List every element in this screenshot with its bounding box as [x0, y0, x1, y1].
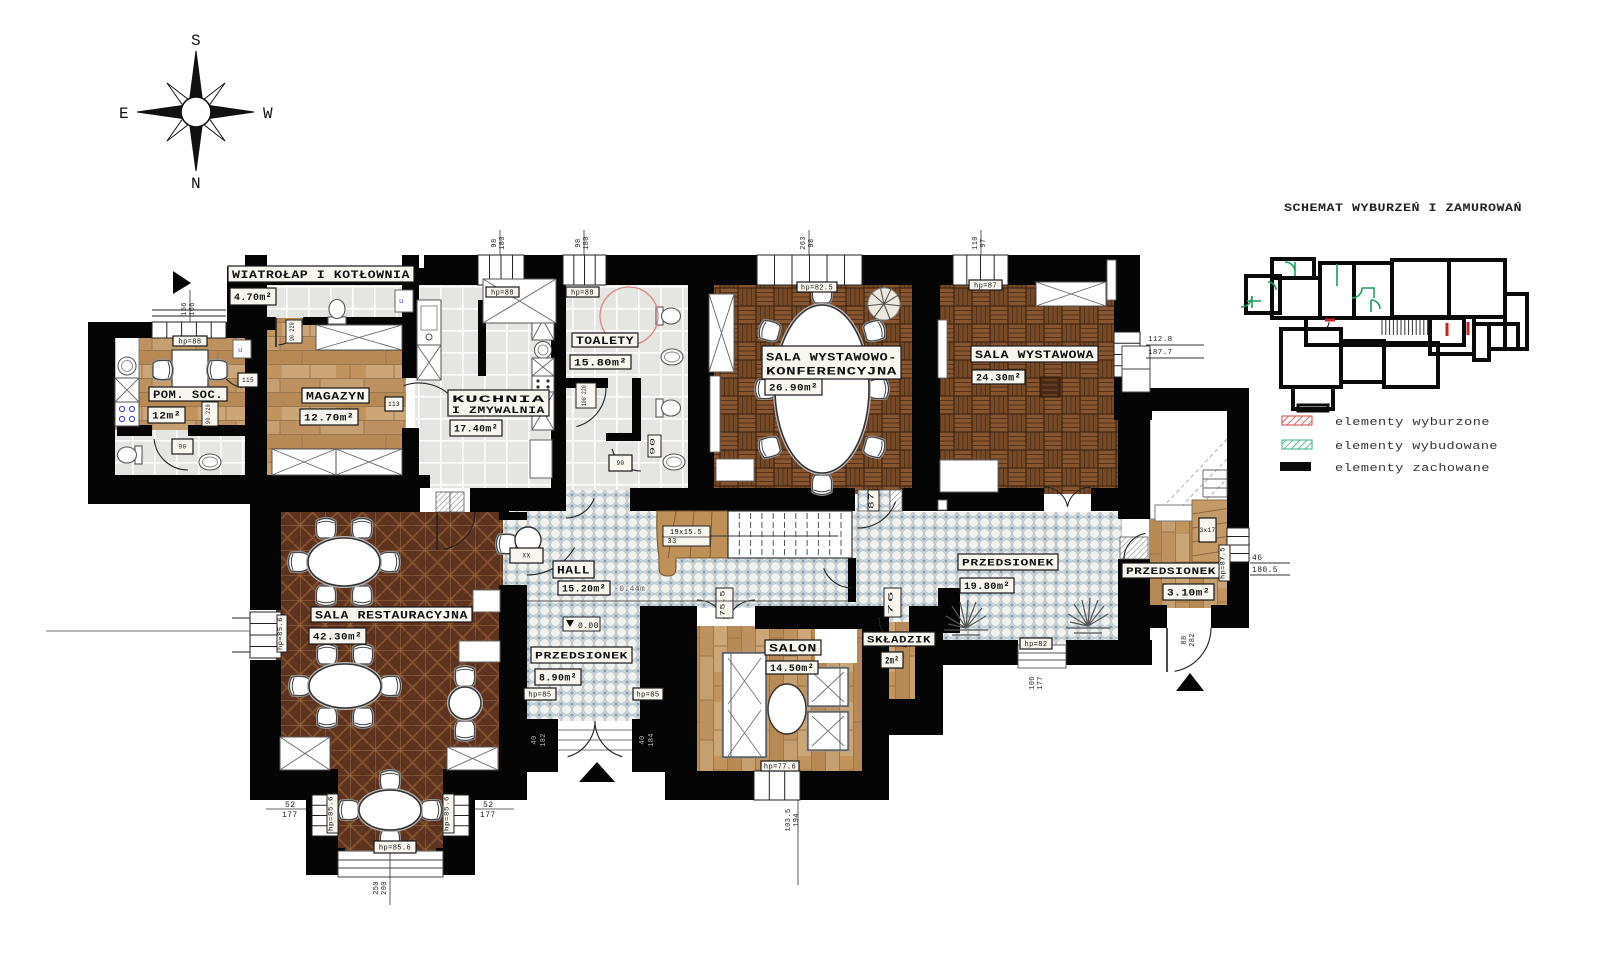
svg-text:156: 156 [181, 302, 189, 316]
svg-text:SALON: SALON [769, 643, 817, 655]
svg-text:8.90m²: 8.90m² [539, 674, 577, 685]
svg-text:110: 110 [972, 236, 980, 250]
svg-text:hp=82: hp=82 [1024, 641, 1047, 649]
svg-text:88: 88 [1181, 635, 1189, 644]
svg-text:KONFERENCYJNA: KONFERENCYJNA [766, 367, 897, 379]
svg-text:106: 106 [1029, 676, 1037, 690]
svg-text:12.70m²: 12.70m² [304, 414, 354, 425]
svg-text:elementy wyburzone: elementy wyburzone [1335, 417, 1490, 429]
svg-text:SALA WYSTAWOWA: SALA WYSTAWOWA [975, 350, 1094, 362]
svg-text:12m²: 12m² [152, 412, 181, 423]
svg-text:98: 98 [575, 238, 583, 247]
svg-text:hp=88: hp=88 [571, 290, 594, 298]
svg-text:194: 194 [793, 813, 801, 827]
svg-text:N: N [191, 175, 201, 193]
svg-text:KUCHNIA: KUCHNIA [452, 395, 545, 406]
svg-text:87: 87 [869, 492, 877, 509]
svg-text:PRZEDSIONEK: PRZEDSIONEK [962, 559, 1054, 570]
svg-text:MAGAZYN: MAGAZYN [306, 391, 365, 403]
svg-text:4.70m²: 4.70m² [234, 293, 272, 304]
svg-text:46: 46 [1252, 554, 1262, 563]
svg-text:hp=85.6: hp=85.6 [277, 617, 284, 650]
svg-text:184: 184 [648, 733, 656, 747]
svg-text:90: 90 [616, 460, 624, 467]
svg-text:WIATROŁAP I KOTŁOWNIA: WIATROŁAP I KOTŁOWNIA [232, 270, 410, 282]
svg-text:0.00: 0.00 [578, 622, 599, 631]
svg-text:14.50m²: 14.50m² [770, 664, 814, 675]
svg-text:W: W [263, 105, 273, 123]
svg-text:17.40m²: 17.40m² [454, 425, 498, 436]
svg-text:u: u [238, 347, 243, 355]
svg-text:40: 40 [639, 735, 647, 744]
svg-text:112.8: 112.8 [1148, 336, 1173, 344]
svg-text:282: 282 [1189, 633, 1197, 647]
svg-text:-0.44m: -0.44m [614, 585, 645, 594]
svg-text:115: 115 [242, 377, 254, 384]
svg-text:hp=85.6: hp=85.6 [328, 796, 335, 831]
svg-text:SCHEMAT WYBURZEŃ I ZAMUROWAŃ: SCHEMAT WYBURZEŃ I ZAMUROWAŃ [1284, 201, 1522, 215]
svg-text:hp=88: hp=88 [178, 339, 201, 347]
svg-text:90 220: 90 220 [289, 322, 296, 341]
svg-text:90 220: 90 220 [205, 404, 212, 424]
svg-text:24.30m²: 24.30m² [976, 374, 1021, 385]
svg-text:hp=85.6: hp=85.6 [379, 845, 411, 853]
svg-text:98: 98 [491, 238, 499, 247]
svg-text:19.80m²: 19.80m² [964, 582, 1010, 593]
svg-text:XX: XX [522, 553, 530, 560]
svg-text:177: 177 [282, 811, 298, 820]
svg-text:177: 177 [1037, 676, 1045, 690]
svg-text:75.5: 75.5 [720, 590, 727, 616]
svg-text:E: E [119, 105, 129, 123]
svg-text:elementy zachowane: elementy zachowane [1335, 463, 1490, 475]
svg-text:hp=85.6: hp=85.6 [444, 796, 451, 831]
svg-text:POM. SOC.: POM. SOC. [153, 390, 223, 402]
svg-text:u: u [399, 298, 404, 306]
svg-text:177: 177 [480, 811, 496, 820]
svg-text:182: 182 [540, 733, 548, 747]
svg-text:90: 90 [178, 444, 186, 451]
svg-text:90: 90 [650, 437, 657, 455]
svg-text:250: 250 [373, 881, 381, 895]
svg-text:S: S [191, 32, 201, 50]
svg-text:SKŁADZIK: SKŁADZIK [867, 636, 931, 647]
svg-text:19x15.5: 19x15.5 [670, 529, 702, 537]
svg-text:76: 76 [888, 590, 895, 615]
svg-text:180.5: 180.5 [1252, 566, 1278, 575]
svg-text:PRZEDSIONEK: PRZEDSIONEK [1126, 567, 1216, 578]
svg-text:103.5: 103.5 [785, 808, 793, 831]
svg-text:HALL: HALL [557, 565, 590, 577]
svg-text:113: 113 [388, 401, 400, 408]
svg-text:hp=77.6: hp=77.6 [764, 764, 796, 772]
svg-text:42.30m²: 42.30m² [313, 633, 362, 644]
svg-text:3x17: 3x17 [1199, 527, 1215, 534]
svg-text:TOALETY: TOALETY [576, 336, 634, 348]
svg-text:15.80m²: 15.80m² [574, 359, 627, 370]
svg-text:100 220: 100 220 [581, 385, 588, 406]
svg-text:187.7: 187.7 [1148, 349, 1173, 357]
svg-text:33: 33 [667, 538, 676, 546]
svg-text:elementy wybudowane: elementy wybudowane [1335, 441, 1498, 453]
svg-text:2m²: 2m² [885, 657, 899, 668]
svg-text:hp=85: hp=85 [636, 692, 659, 700]
svg-text:200: 200 [381, 881, 389, 895]
svg-text:3.10m²: 3.10m² [1167, 589, 1210, 600]
svg-text:hp=88: hp=88 [491, 290, 514, 298]
svg-text:PRZEDSIONEK: PRZEDSIONEK [535, 652, 628, 663]
svg-text:hp=82.5: hp=82.5 [801, 285, 833, 293]
svg-text:26.90m²: 26.90m² [769, 384, 818, 395]
svg-text:263: 263 [800, 236, 808, 250]
svg-text:SALA WYSTAWOWO-: SALA WYSTAWOWO- [766, 353, 897, 365]
svg-text:I ZMYWALNIA: I ZMYWALNIA [452, 406, 545, 417]
svg-text:hp=85: hp=85 [528, 692, 551, 700]
svg-text:hp=87: hp=87 [974, 283, 997, 291]
svg-text:hp=87.5: hp=87.5 [1220, 547, 1227, 579]
svg-text:15.20m²: 15.20m² [562, 585, 606, 596]
svg-text:SALA RESTAURACYJNA: SALA RESTAURACYJNA [315, 610, 468, 622]
svg-text:40: 40 [531, 735, 539, 744]
